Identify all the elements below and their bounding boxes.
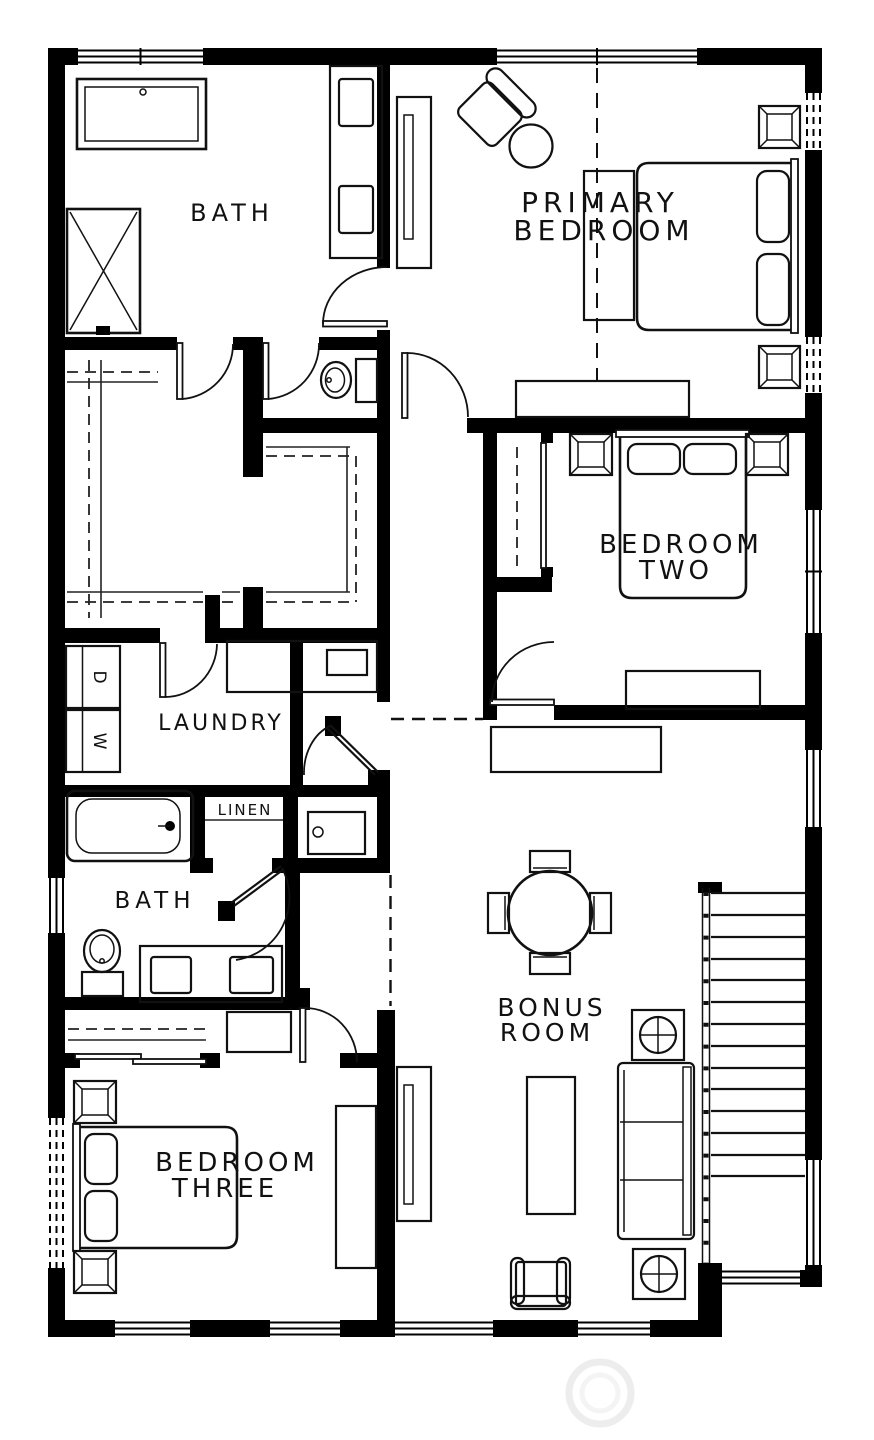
dresser: [227, 1012, 291, 1052]
dresser: [516, 381, 689, 417]
room-bath-primary: BATH: [67, 66, 382, 402]
bedroom-three-label-2: THREE: [171, 1174, 278, 1204]
nightstand: [570, 434, 612, 475]
window-bonus-bottom-1: [395, 1323, 493, 1335]
window-bonus-right: [807, 750, 820, 827]
bathtub: [67, 791, 193, 861]
door-primary-entry: [402, 353, 468, 418]
coffee-table: [527, 1077, 575, 1214]
doors: [75, 267, 554, 1064]
toilet: [82, 930, 123, 996]
window-bedroom-two-right: [805, 510, 822, 633]
room-bath-hall: BATH: [67, 791, 282, 1002]
bath-primary-label: BATH: [190, 199, 274, 227]
dresser: [626, 671, 760, 709]
linen-closet: LINEN: [205, 801, 283, 820]
dryer-letter: D: [89, 670, 109, 683]
nightstand: [746, 434, 788, 475]
washer-letter: W: [89, 733, 109, 750]
bonus-room-label-2: ROOM: [500, 1018, 594, 1047]
window-bath-top: [78, 48, 203, 65]
room-bedroom-two: BEDROOM TWO: [517, 430, 788, 709]
wet-bar: [308, 812, 365, 854]
sofa: [618, 1063, 694, 1239]
room-laundry: D W LAUNDRY: [66, 641, 377, 772]
window-stair-bay-bottom: [722, 1272, 800, 1284]
laundry-label: LAUNDRY: [158, 711, 284, 736]
accent-chair: [452, 65, 540, 153]
round-side-table: [510, 125, 553, 168]
window-bonus-bottom-2: [578, 1323, 650, 1335]
tall-bookcase: [397, 97, 431, 268]
shower: [67, 209, 140, 335]
nightstand: [74, 1081, 116, 1123]
primary-bedroom-label-2: BEDROOM: [513, 214, 694, 247]
bedroom-two-label-2: TWO: [638, 556, 713, 586]
room-primary-bedroom: PRIMARY BEDROOM: [397, 65, 800, 417]
dresser-tall: [336, 1106, 376, 1268]
toilet: [321, 359, 377, 402]
door-primary-to-bath: [323, 267, 387, 327]
window-bedroom-three-bottom-2: [270, 1323, 340, 1335]
washer: W: [66, 710, 120, 772]
wet-bar-sink-cabinet: [308, 812, 365, 854]
side-table-lamp: [632, 1010, 684, 1060]
door-bedroom-three-closet-bypass: [75, 1054, 206, 1064]
watermark: [569, 1362, 631, 1424]
door-bath-to-toilet-room: [263, 343, 319, 399]
window-bath-hall-left: [50, 878, 63, 933]
floor-plan-page: BATH PRIMARY BEDROOM BEDROOM TWO D: [0, 0, 874, 1440]
bath-hall-label: BATH: [114, 888, 195, 914]
window-primary-top: [497, 48, 697, 65]
room-bonus: BONUS ROOM: [397, 727, 694, 1309]
door-bedroom-two-entry: [490, 642, 554, 705]
bathtub: [77, 79, 206, 149]
window-bedroom-three-bottom-1: [115, 1323, 190, 1335]
armchair: [511, 1258, 570, 1309]
window-primary-right-lower: [807, 337, 820, 393]
stair-treads: [711, 893, 805, 1176]
staircase: [703, 888, 806, 1263]
nightstand: [759, 106, 800, 148]
credenza: [491, 727, 661, 772]
dryer: D: [66, 646, 120, 708]
window-bedroom-three-left: [50, 1118, 63, 1268]
window-primary-right-upper: [807, 93, 820, 150]
walk-in-closet: [67, 360, 356, 618]
double-sink-vanity: [140, 946, 282, 1002]
double-sink-vanity: [330, 66, 382, 258]
round-table-with-chairs: [488, 851, 611, 974]
media-console: [397, 1067, 431, 1221]
nightstand: [74, 1251, 116, 1293]
door-bath-to-closet: [177, 343, 233, 399]
door-closet-to-laundry: [160, 643, 217, 697]
cased-opening-lines: [391, 719, 484, 1006]
door-bedroom-two-closet: [541, 443, 546, 568]
nightstand: [759, 346, 800, 388]
window-stair-bay-right: [807, 1160, 820, 1265]
linen-label: LINEN: [218, 801, 273, 819]
side-table-lamp: [633, 1249, 685, 1299]
floor-plan-drawing: BATH PRIMARY BEDROOM BEDROOM TWO D: [0, 0, 874, 1440]
